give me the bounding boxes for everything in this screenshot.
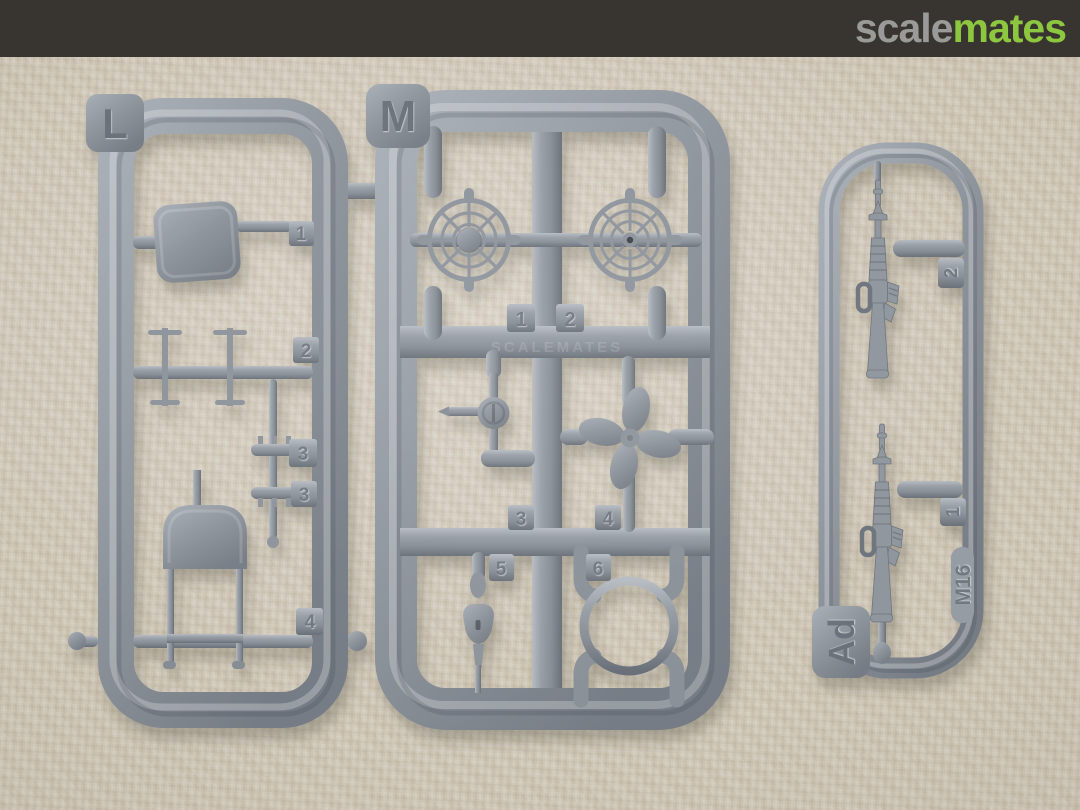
sprue-ad: M16 2 1 Ad <box>812 151 975 678</box>
part-number: 3 <box>299 485 310 506</box>
part-chair-frame <box>163 470 247 669</box>
sprue-l: 1 2 3 3 4 L <box>68 94 384 714</box>
part-number: 1 <box>296 224 307 245</box>
logo-text-scale: scale <box>855 5 953 51</box>
sprue-l-label: L <box>102 100 128 147</box>
part-number-tab: 4 <box>296 608 323 635</box>
part-number-tab: 2 <box>938 258 964 288</box>
part-fan-guard-solid <box>417 188 521 292</box>
part-number-tab: 1 <box>289 221 314 246</box>
runner <box>236 221 292 232</box>
runner <box>893 240 965 257</box>
sprue-ball <box>873 642 891 664</box>
part-number: 6 <box>593 559 604 580</box>
part-number: 2 <box>564 309 575 331</box>
sprue-m-label: M <box>380 92 417 141</box>
part-number: 5 <box>496 559 507 580</box>
part-number: 1 <box>515 309 526 331</box>
scalemates-logo: scalemates <box>855 8 1066 49</box>
part-number: 4 <box>305 612 316 633</box>
sprue-ad-label-tab: Ad <box>812 606 870 678</box>
part-seat-plate <box>152 200 241 284</box>
part-number: 3 <box>516 509 527 530</box>
part-number-tab: 3 <box>508 505 534 530</box>
sprue-marking-plate: M16 <box>951 547 975 623</box>
part-number-tab: 4 <box>595 505 621 530</box>
header-bar: scalemates <box>0 0 1080 57</box>
part-number-tab: 6 <box>586 554 611 581</box>
part-number: 1 <box>943 507 963 517</box>
part-number-tab: 1 <box>940 498 966 526</box>
part-rifle-1 <box>862 424 903 622</box>
sprue-l-label-tab: L <box>86 94 144 152</box>
photo-watermark: SCALEMATES <box>491 339 623 356</box>
sprue-ad-label: Ad <box>821 618 862 666</box>
part-number: 3 <box>298 444 309 465</box>
part-number-tab: 1 <box>507 304 535 332</box>
part-number-tab: 3 <box>289 439 317 467</box>
sprue-m: SCALEMATES <box>366 84 714 713</box>
runner <box>897 481 963 498</box>
part-rifle-2 <box>858 180 899 378</box>
part-number-tab: 3 <box>291 481 317 507</box>
sprue-m-frame <box>393 107 712 713</box>
sprue-marking: M16 <box>952 565 975 606</box>
part-number: 2 <box>941 268 961 278</box>
part-number-tab: 2 <box>556 304 584 332</box>
runner <box>133 366 313 379</box>
part-number: 2 <box>301 341 312 362</box>
part-number-tab: 5 <box>489 554 514 581</box>
part-number: 4 <box>603 509 614 530</box>
logo-text-mates: mates <box>952 5 1066 51</box>
part-fan-guard-open <box>578 188 682 292</box>
sprue-photo: 1 2 3 3 4 L <box>0 0 1080 810</box>
sprue-m-label-tab: M <box>366 84 430 148</box>
sprue-ball <box>347 631 367 651</box>
part-number-tab: 2 <box>293 337 319 363</box>
sprue-ball <box>68 632 86 650</box>
part-valve-lever <box>438 350 535 467</box>
